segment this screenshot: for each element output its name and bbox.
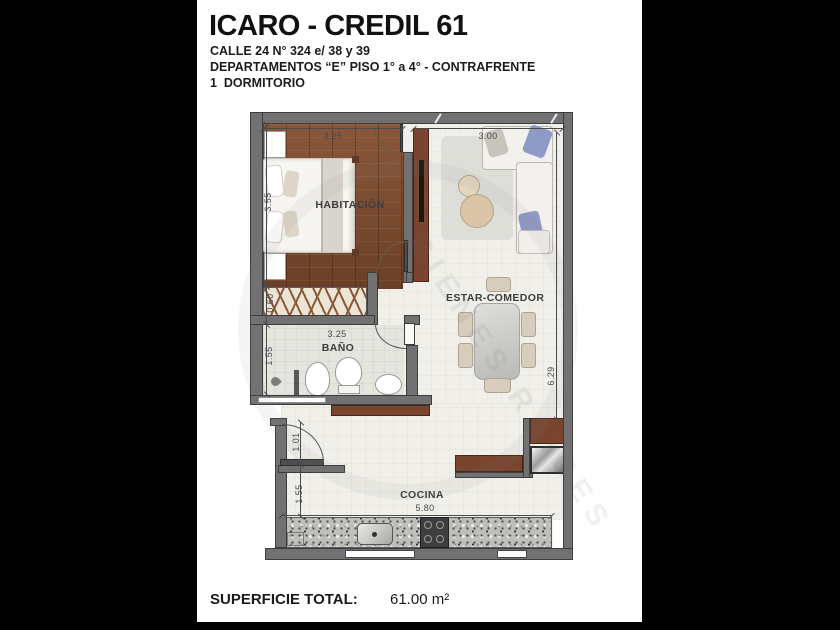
sofa-ottoman	[518, 230, 550, 254]
wall-bedroom-door-stub	[406, 272, 413, 283]
page-title: ICARO - CREDIL 61	[209, 10, 467, 43]
coffee-table-large	[460, 194, 494, 228]
dimline-kitchen-width	[281, 515, 552, 516]
living-label: ESTAR-COMEDOR	[446, 292, 544, 304]
dining-table	[474, 303, 520, 380]
closet-depth-dim: 0.60	[265, 291, 275, 315]
total-area-label: SUPERFICIE TOTAL:	[210, 591, 358, 608]
dining-chair	[458, 312, 473, 337]
nightstand	[264, 253, 286, 280]
burner	[424, 521, 432, 529]
living-width-dim: 3.00	[470, 131, 506, 141]
wall-entry-kitchen	[278, 465, 345, 473]
kitchen-counter	[281, 517, 552, 548]
tall-cabinet	[530, 418, 567, 444]
burner	[436, 535, 444, 543]
kitchen-label: COCINA	[387, 489, 457, 501]
bedroom-closet	[263, 287, 367, 316]
flyer-content: ICARO - CREDIL 61 CALLE 24 N° 324 e/ 38 …	[197, 0, 642, 622]
dimline-living-depth	[556, 132, 557, 420]
bed-post	[352, 249, 359, 256]
kitchen-depth-dim: 1.55	[294, 482, 304, 506]
refrigerator	[530, 446, 565, 474]
bathroom-sink	[375, 374, 402, 395]
dining-chair	[486, 277, 511, 292]
fridge-nook-wall	[523, 418, 530, 478]
bed-pillow	[264, 210, 284, 244]
dining-chair	[521, 312, 536, 337]
dining-chair	[484, 378, 511, 393]
kitchen-window	[345, 550, 415, 558]
kitchen-divider-wall	[455, 472, 533, 478]
bathroom-depth-dim: 1.55	[264, 344, 274, 368]
dining-chair	[458, 343, 473, 368]
wall-right	[563, 112, 573, 560]
cabinet-strip	[331, 405, 430, 416]
building-line: DEPARTAMENTOS “E” PISO 1° a 4° - CONTRAF…	[210, 60, 535, 74]
toilet-tank	[338, 385, 360, 394]
stove-cooktop	[420, 517, 449, 548]
counter-peninsula	[455, 455, 523, 472]
bathroom-label: BAÑO	[308, 342, 368, 354]
dimline-living-width	[413, 128, 563, 129]
bed-cushion	[282, 210, 299, 238]
counter-module	[287, 532, 304, 546]
bathroom-width-dim: 3.25	[324, 329, 350, 339]
bedroom-label: HABITACIÓN	[308, 199, 392, 211]
wall-bathroom-top	[250, 315, 375, 325]
screenshot-page: ICARO - CREDIL 61 CALLE 24 N° 324 e/ 38 …	[0, 0, 840, 630]
bathroom-window	[258, 397, 326, 403]
kitchen-window	[497, 550, 527, 558]
address-line: CALLE 24 N° 324 e/ 38 y 39	[210, 44, 370, 58]
bed-post	[352, 156, 359, 163]
bidet	[305, 362, 330, 396]
shower-partition	[294, 370, 299, 396]
burner	[436, 521, 444, 529]
sink-drain	[372, 532, 377, 537]
entry-width-dim: 1.01	[291, 430, 301, 454]
wall-left-upper	[250, 112, 263, 404]
wall-top	[250, 112, 573, 124]
kitchen-width-dim: 5.80	[408, 503, 442, 513]
dimline-bedroom-width	[263, 128, 403, 129]
bed-cushion	[282, 170, 299, 198]
bedroom-depth-dim: 3.55	[263, 190, 273, 214]
total-area-value: 61.00 m²	[390, 591, 449, 608]
dining-chair	[521, 343, 536, 368]
nightstand	[264, 131, 286, 158]
side-window-gap	[553, 520, 563, 548]
burner	[424, 535, 432, 543]
bedroom-width-dim: 3.25	[315, 131, 351, 141]
living-depth-dim: 6.29	[546, 364, 556, 388]
kitchen-sink	[357, 523, 393, 545]
tv-icon	[419, 160, 424, 222]
floor-plan: HABITACIÓN ESTAR-COMEDOR	[250, 112, 573, 560]
toilet	[335, 357, 362, 387]
bedrooms-line: 1 DORMITORIO	[210, 76, 305, 90]
